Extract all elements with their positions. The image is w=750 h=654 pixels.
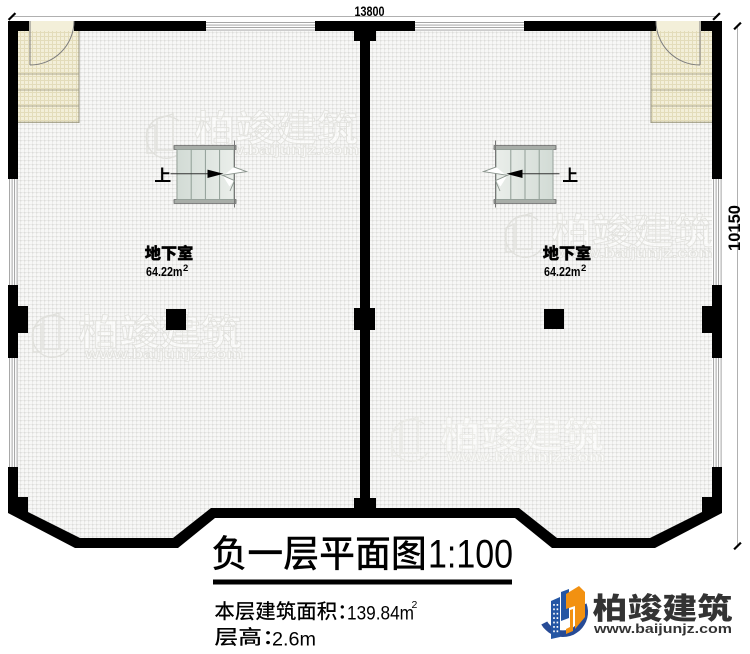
svg-text:64.22m: 64.22m [544, 264, 581, 279]
svg-text:2.6m: 2.6m [272, 629, 316, 651]
svg-text:2: 2 [412, 599, 418, 611]
svg-text:2: 2 [183, 263, 188, 274]
svg-text:www.baijunjz.com: www.baijunjz.com [84, 347, 243, 362]
svg-text:64.22m: 64.22m [146, 264, 183, 279]
svg-text:www.baijunjz.com: www.baijunjz.com [446, 450, 605, 465]
svg-text:10150: 10150 [726, 205, 744, 251]
svg-text:139.84m: 139.84m [347, 603, 414, 625]
svg-text:13800: 13800 [355, 3, 385, 19]
svg-text:1:100: 1:100 [428, 533, 513, 577]
svg-text:www.baijunjz.com: www.baijunjz.com [593, 621, 732, 636]
svg-text:2: 2 [581, 263, 586, 274]
